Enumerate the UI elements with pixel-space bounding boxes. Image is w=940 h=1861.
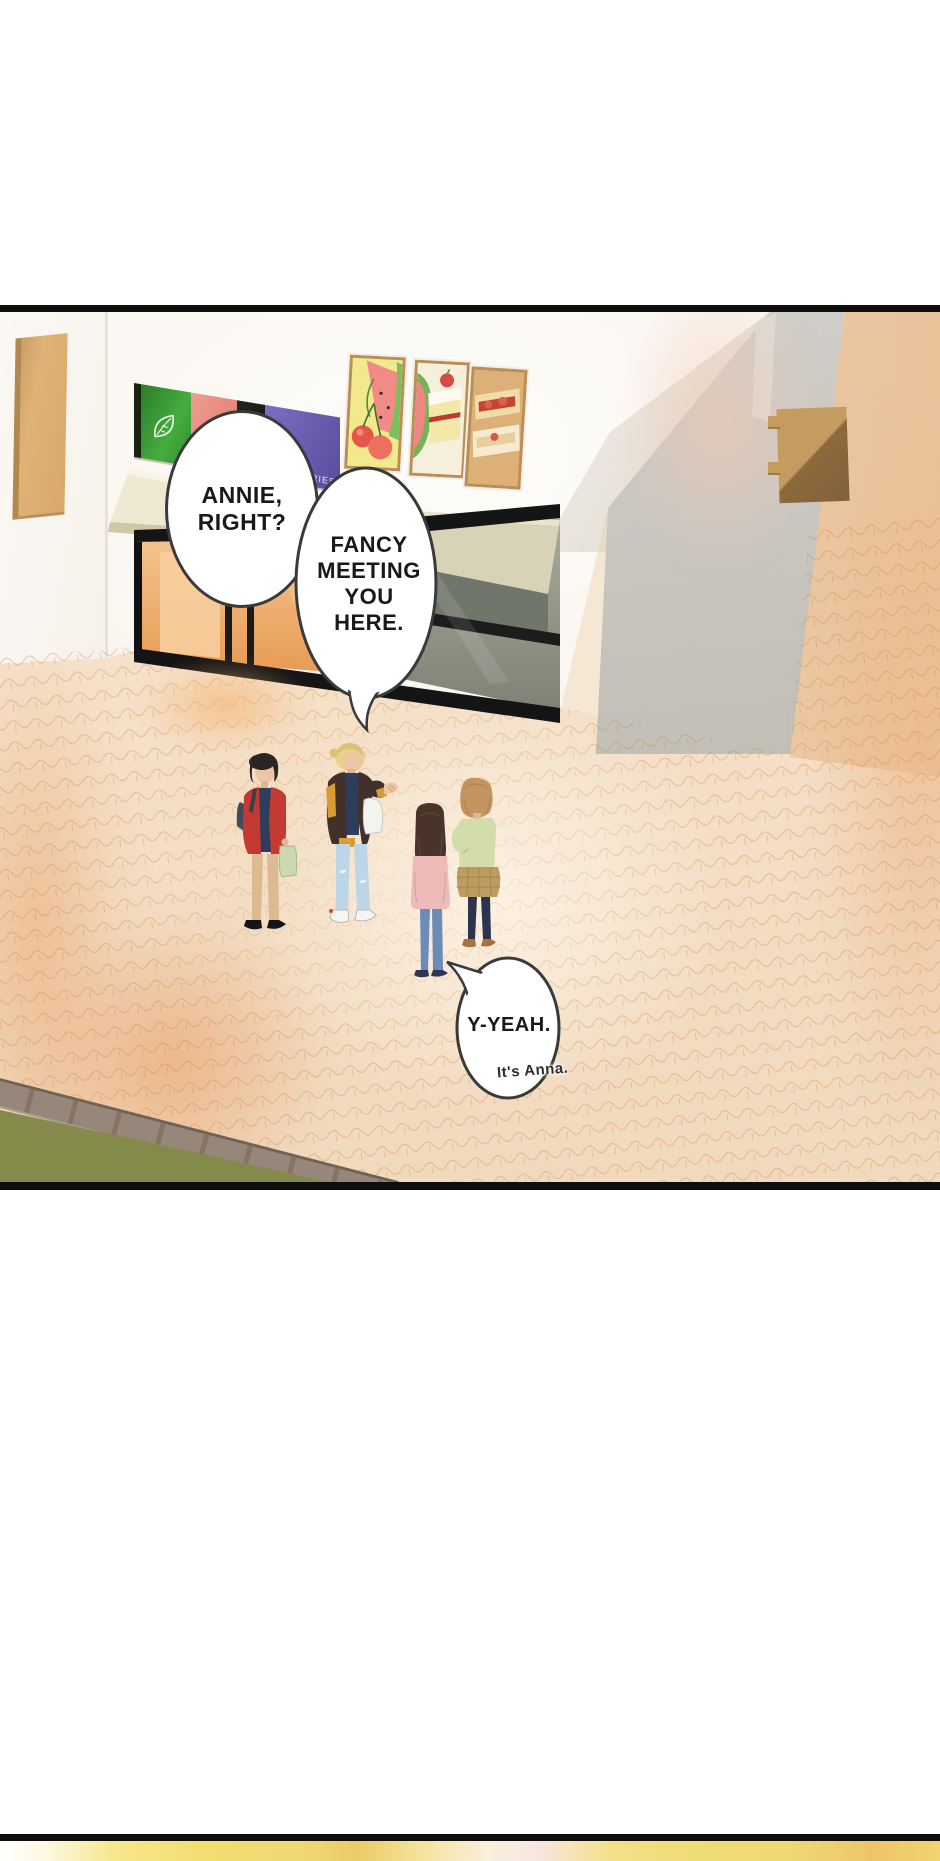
character-boy-blonde [304, 740, 400, 930]
speech-bubble-yeah-text: Y-YEAH. [455, 1014, 563, 1038]
panel-main: ERIES [0, 305, 940, 1190]
watermelon-icon [347, 358, 403, 468]
bubble-line: YOU [344, 584, 393, 609]
bubble-line: MEETING [317, 558, 421, 583]
panel-next-sliver [0, 1834, 940, 1861]
sign-bracket [768, 416, 780, 429]
poster-watermelon-cherries [344, 355, 406, 472]
wooden-sign-right [776, 407, 849, 503]
bubble-line: ANNIE, [202, 482, 283, 508]
wooden-sign-left [12, 333, 67, 520]
toast-icon [468, 370, 525, 487]
banner-section-dark [134, 383, 141, 458]
sign-bracket [768, 462, 780, 475]
door-light-glow [140, 660, 310, 750]
leaf-icon [149, 408, 181, 452]
speech-bubble-fancy-text: FANCY MEETING YOU HERE. [300, 532, 438, 636]
character-girl-green [448, 777, 506, 957]
character-boy-red-jacket [228, 750, 302, 950]
comic-page: ERIES [0, 0, 940, 1861]
cake-icon [412, 363, 467, 475]
poster-jam-toast [464, 366, 527, 489]
bubble-line: FANCY [330, 532, 407, 557]
bubble-line: HERE. [334, 610, 404, 635]
panel-main-content: ERIES [0, 312, 940, 1182]
bubble-line: RIGHT? [198, 509, 287, 535]
poster-watermelon-cake [409, 360, 470, 479]
